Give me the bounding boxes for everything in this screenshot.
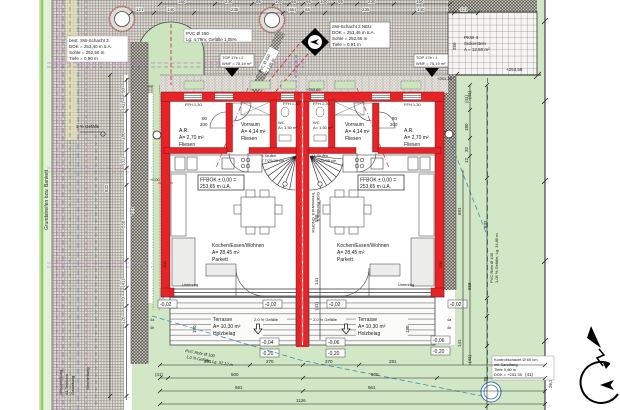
svg-text:(41): (41) [314,301,319,310]
svg-text:A= 4,14 m²: A= 4,14 m² [241,129,266,135]
svg-text:65: 65 [306,0,312,4]
svg-text:Fliesen: Fliesen [179,142,195,148]
svg-text:(41): (41) [525,372,534,377]
svg-text:235: 235 [231,7,239,12]
svg-text:140: 140 [417,7,425,12]
svg-text:Sickerstein: Sickerstein [464,41,487,46]
svg-text:291: 291 [204,359,212,364]
svg-text:80: 80 [202,116,208,121]
svg-text:DOK = 253,40 m ü.A.: DOK = 253,40 m ü.A. [69,44,112,49]
svg-text:Stromleitung: Stromleitung [85,368,90,390]
svg-text:65: 65 [291,0,297,4]
svg-text:A= 2,70 m²: A= 2,70 m² [179,135,204,141]
svg-text:95: 95 [256,0,262,4]
svg-text:691: 691 [457,207,462,215]
svg-text:Tiefe = 0,90 m: Tiefe = 0,90 m [69,56,98,61]
svg-text:Unterzug: Unterzug [182,282,198,287]
svg-text:4b: 4b [150,326,154,330]
svg-text:190: 190 [405,325,410,333]
svg-text:Trennwand lt. ÖNORM: Trennwand lt. ÖNORM [311,192,316,233]
svg-text:691: 691 [129,207,134,215]
svg-text:180: 180 [464,123,469,131]
svg-text:12: 12 [464,157,469,163]
svg-text:FFBOK ± 0,00 =: FFBOK ± 0,00 = [200,178,236,184]
svg-text:100: 100 [320,0,328,4]
svg-text:253,65 m ü.A.: 253,65 m ü.A. [200,184,231,190]
svg-text:-0,04: -0,04 [262,340,274,346]
svg-text:A.R.: A.R. [179,128,189,134]
svg-text:2,0 % Gefälle: 2,0 % Gefälle [254,317,279,322]
svg-text:FFH 1,30: FFH 1,30 [283,101,300,106]
svg-text:best. SW-Schacht 3: best. SW-Schacht 3 [69,38,109,43]
svg-text:Terrasse: Terrasse [213,317,232,323]
svg-text:(41): (41) [467,90,472,99]
svg-text:121: 121 [136,7,144,12]
svg-text:(41): (41) [467,354,472,363]
svg-text:558: 558 [467,282,472,290]
svg-text:DOK = +253,35: DOK = +253,35 [494,372,523,377]
svg-text:230: 230 [368,0,376,4]
svg-text:Holzbelag: Holzbelag [213,331,235,337]
svg-text:-0,06: -0,06 [433,338,445,344]
svg-text:Sohle = 252,50 m: Sohle = 252,50 m [69,50,105,55]
svg-text:WNF = 75,19 m²: WNF = 75,19 m² [416,61,446,66]
svg-text:Parkett: Parkett [337,257,353,263]
svg-text:A = 12,50 m²: A = 12,50 m² [464,47,490,52]
svg-text:561: 561 [235,385,243,390]
svg-text:+0,00: +0,00 [150,178,160,182]
svg-text:+253,65: +253,65 [306,87,321,92]
svg-text:Unterzug: Unterzug [398,282,414,287]
svg-text:-0,02: -0,02 [329,302,341,308]
svg-text:150: 150 [178,0,186,4]
svg-text:200: 200 [162,261,167,268]
svg-text:50: 50 [121,87,126,93]
svg-text:-0,06: -0,06 [328,340,340,346]
svg-text:-0,02: -0,02 [265,302,277,308]
svg-text:A= 10,30 m²: A= 10,30 m² [213,324,241,330]
svg-text:A1 Telekom: A1 Telekom [64,374,69,395]
svg-text:-0,20: -0,20 [262,351,274,357]
svg-text:PVC Ø 150: PVC Ø 150 [186,31,209,36]
svg-text:Kochen/Essen/Wohnen: Kochen/Essen/Wohnen [337,243,389,249]
svg-text:Fliesen: Fliesen [241,136,257,142]
svg-text:A= 28,45 m²: A= 28,45 m² [337,250,365,256]
svg-text:150: 150 [416,0,424,4]
svg-text:A= 2,70 m²: A= 2,70 m² [404,135,429,141]
svg-text:Gasleitung: Gasleitung [70,376,75,395]
svg-text:4b: 4b [447,326,451,330]
svg-text:Grundstreifen bzw. Bankett: Grundstreifen bzw. Bankett [44,169,50,230]
svg-text:32: 32 [464,146,469,152]
svg-text:65: 65 [305,7,311,12]
svg-text:70: 70 [121,296,126,302]
svg-text:1,05 % Gefälle, Lg. 14,80 m: 1,05 % Gefälle, Lg. 14,80 m [494,233,499,283]
svg-text:-0,02: -0,02 [450,302,462,308]
svg-text:Fliesen: Fliesen [404,142,420,148]
svg-text:Vorraum: Vorraum [345,122,364,128]
svg-text:832: 832 [483,220,488,228]
svg-text:-0,20: -0,20 [328,351,340,357]
svg-text:17,7/25/28 cm: 17,7/25/28 cm [259,158,285,163]
svg-text:+253,38: +253,38 [437,76,452,81]
svg-text:+253,58: +253,58 [506,67,523,72]
svg-text:FFH 1,30: FFH 1,30 [185,102,202,107]
svg-text:100: 100 [275,0,283,4]
svg-text:141: 141 [457,339,462,347]
svg-text:A= 1,50 m²: A= 1,50 m² [313,125,333,130]
svg-text:(65): (65) [288,7,297,12]
svg-text:-0,20: -0,20 [433,349,445,355]
svg-text:A= 28,45 m²: A= 28,45 m² [212,250,240,256]
svg-text:A= 4,14 m²: A= 4,14 m² [345,129,370,135]
svg-text:Kochen/Essen/Wohnen: Kochen/Essen/Wohnen [212,243,264,249]
svg-text:Parkett: Parkett [212,257,228,263]
svg-text:(41): (41) [121,101,126,110]
svg-text:Terrasse: Terrasse [358,317,377,323]
svg-text:(32): (32) [121,156,126,165]
svg-text:140: 140 [167,7,175,12]
svg-text:TOP 17b / 2: TOP 17b / 2 [222,55,244,60]
svg-text:Fliesen: Fliesen [345,136,361,142]
svg-text:558: 558 [121,220,126,228]
svg-text:FFH 1,30: FFH 1,30 [313,101,330,106]
svg-text:FFBOK ± 0,00 =: FFBOK ± 0,00 = [360,178,396,184]
svg-text:120: 120 [121,316,126,324]
svg-text:A.R.: A.R. [404,128,414,134]
svg-text:Tiefe = 0,91 m: Tiefe = 0,91 m [332,42,361,47]
svg-text:500: 500 [231,372,239,377]
svg-text:Sohle = 252,55 m: Sohle = 252,55 m [332,36,368,41]
svg-text:Vorraum: Vorraum [241,122,260,128]
svg-text:180: 180 [121,132,126,140]
svg-text:558: 558 [314,214,319,222]
svg-text:-0,02: -0,02 [160,302,172,308]
svg-text:230: 230 [225,0,233,4]
svg-text:DOK = 253,46 m ü.A.: DOK = 253,46 m ü.A. [332,30,375,35]
svg-text:PKW 4: PKW 4 [464,35,479,40]
svg-text:Holzbelag: Holzbelag [358,331,380,337]
svg-text:141: 141 [314,277,319,285]
svg-text:270: 270 [325,359,333,364]
svg-text:Wasserleitung: Wasserleitung [58,370,63,395]
svg-text:832: 832 [104,184,109,192]
svg-text:235: 235 [362,7,370,12]
svg-text:121: 121 [460,7,468,12]
svg-text:1126: 1126 [296,398,306,403]
svg-text:A= 10,30 m²: A= 10,30 m² [358,324,386,330]
svg-text:270: 270 [266,359,274,364]
svg-text:(41): (41) [121,278,126,287]
svg-text:Lg: 4,79m, Gefälle 1,05%: Lg: 4,79m, Gefälle 1,05% [186,37,237,42]
svg-text:(41): (41) [155,372,164,377]
svg-text:17,7/25/28 cm: 17,7/25/28 cm [311,158,337,163]
svg-text:200: 200 [438,261,443,268]
svg-text:200: 200 [200,122,208,127]
svg-text:291: 291 [389,359,397,364]
svg-text:A= 1,50 m²: A= 1,50 m² [278,125,298,130]
svg-text:250: 250 [452,42,457,50]
svg-text:SW-Schacht 2 NEU: SW-Schacht 2 NEU [332,24,371,29]
svg-text:561: 561 [368,385,376,390]
svg-text:2,0 % Gefälle: 2,0 % Gefälle [313,317,338,322]
svg-text:TOP 17b / 1: TOP 17b / 1 [416,55,438,60]
svg-text:FFH 1,30: FFH 1,30 [404,102,421,107]
svg-text:500: 500 [371,372,379,377]
svg-text:253,65 m ü.A.: 253,65 m ü.A. [360,184,391,190]
svg-text:95: 95 [338,0,344,4]
svg-text:70: 70 [483,376,488,382]
svg-text:WNF = 75,19 m²: WNF = 75,19 m² [222,61,252,66]
svg-text:3 % Gefälle: 3 % Gefälle [76,124,100,129]
